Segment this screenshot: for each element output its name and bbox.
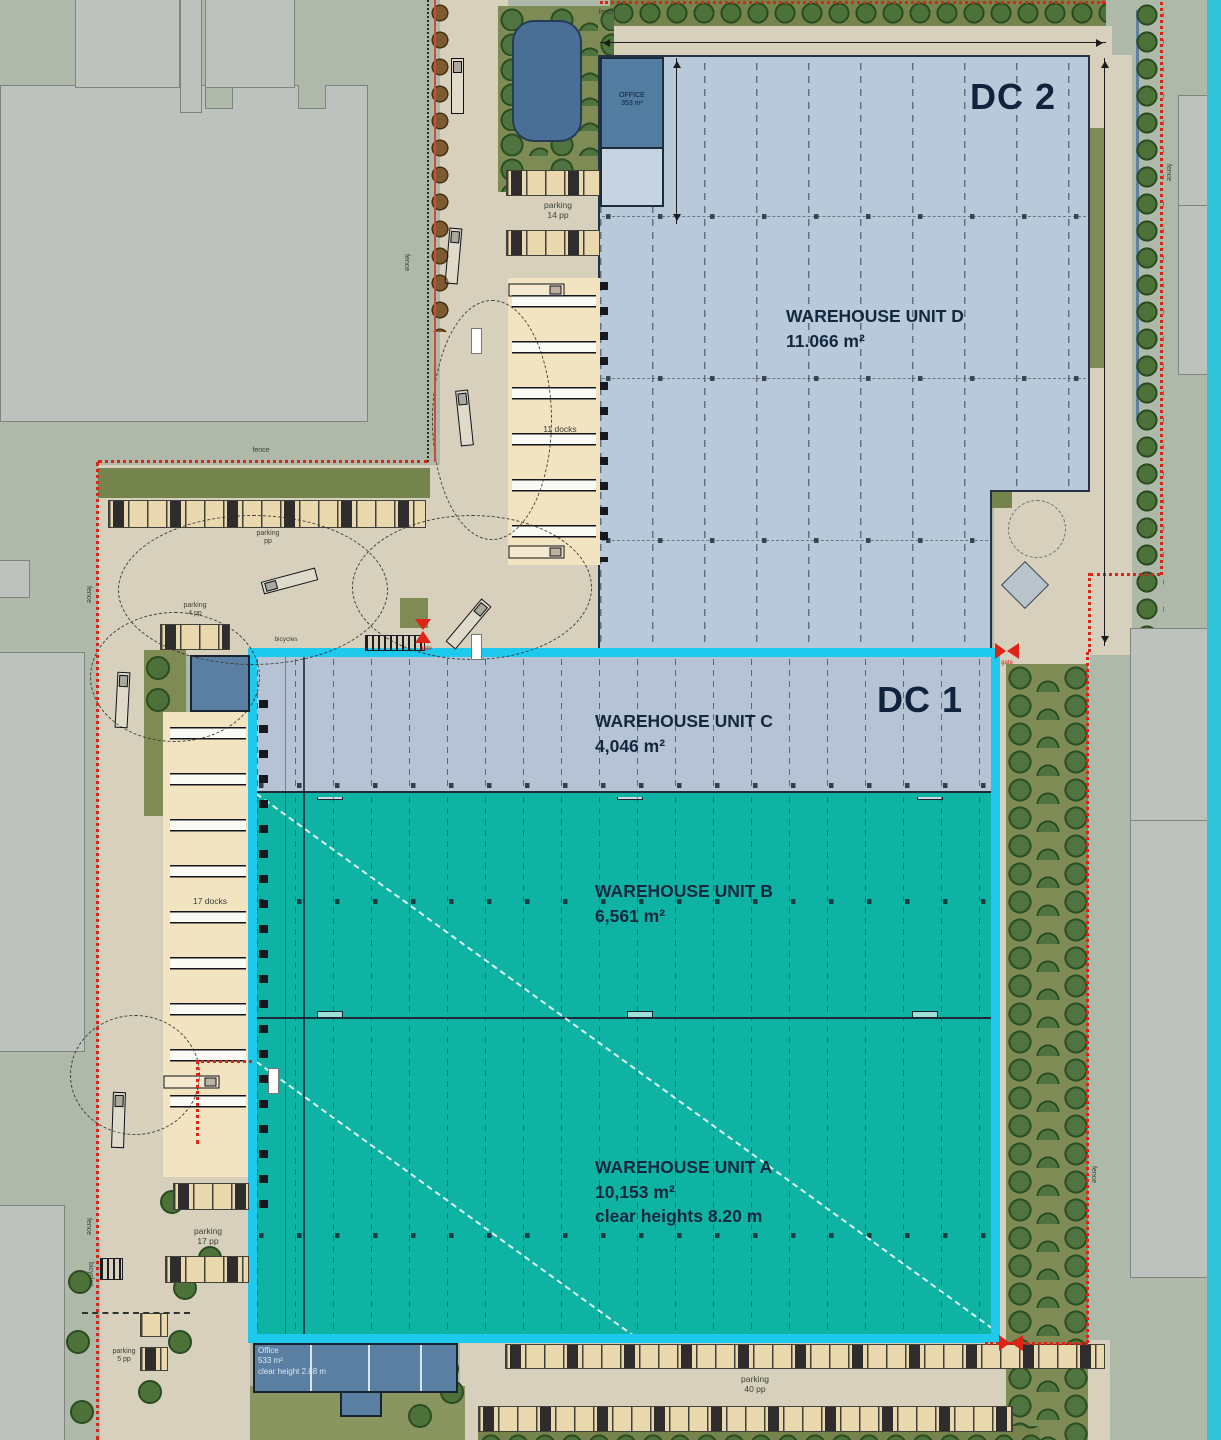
parking-capacity: 14 pp	[523, 210, 593, 220]
dc2-columns	[606, 538, 988, 543]
unit-d-area: 11.066 m²	[786, 329, 964, 354]
p17-label: parking 17 pp	[178, 1226, 238, 1246]
dc1-dock-doors	[259, 700, 268, 1225]
retention-pond	[512, 20, 582, 142]
unit-a-name: WAREHOUSE UNIT A	[595, 1155, 772, 1180]
fence-label: fence	[592, 9, 622, 17]
dimension-tag	[471, 328, 482, 354]
neighbor-building-ne	[1178, 95, 1207, 375]
dc1-south-office-annex	[340, 1393, 382, 1417]
dc2-office-area: 353 m²	[600, 100, 664, 108]
fence-east-orchard	[1086, 652, 1089, 1343]
road-edge-line	[434, 0, 436, 462]
dc2-office-anteroom	[600, 149, 664, 207]
truck-path	[432, 300, 552, 540]
parking-word: parking	[523, 200, 593, 210]
warehouse-unit-c-label: WAREHOUSE UNIT C 4,046 m²	[595, 709, 773, 758]
dc2-east-bed	[1088, 128, 1104, 368]
central-buffer-band	[98, 468, 430, 498]
neighbor-building-sw	[0, 1205, 65, 1440]
tree	[408, 1404, 432, 1428]
dc2-notch-wall	[990, 490, 1090, 492]
fence-north	[600, 1, 1105, 4]
dc2-title: DC 2	[970, 76, 1056, 118]
parking-capacity: 17 pp	[178, 1236, 238, 1246]
neighbor-building-n2	[180, 0, 202, 113]
fence-label: fence	[84, 1210, 92, 1244]
tree	[66, 1330, 90, 1354]
office-area: 533 m²	[258, 1356, 368, 1366]
site-plan: OFFICE 353 m² DC 2 WAREHOUSE UNIT D 11.0…	[0, 0, 1221, 1440]
neighbor-building-w	[0, 652, 85, 1052]
unit-d-name: WAREHOUSE UNIT D	[786, 304, 964, 329]
truck	[509, 284, 565, 297]
neighbor-ne-divider	[1178, 205, 1207, 206]
office-name: Office	[258, 1346, 368, 1356]
tree	[138, 1380, 162, 1404]
dc1-title: DC 1	[877, 679, 963, 721]
tree	[70, 1400, 94, 1424]
neighbor-nw-notch	[298, 85, 326, 109]
fence-road-boundary	[427, 0, 429, 462]
dc1-docks-label: 17 docks	[180, 896, 240, 906]
office-partition	[420, 1345, 422, 1391]
dimension-tag	[268, 1068, 279, 1094]
truck	[164, 1076, 220, 1089]
truck	[451, 58, 464, 114]
parking-word: parking	[700, 1374, 810, 1384]
gate-label: gate	[414, 646, 438, 653]
neighbor-building-e	[1130, 628, 1207, 1278]
bicycle-rack-south	[100, 1258, 123, 1280]
neighbor-building-w-small	[0, 560, 30, 598]
dimension-line	[1104, 58, 1105, 646]
dc2-parking-row-1	[506, 170, 600, 196]
p40-label: parking 40 pp	[700, 1374, 810, 1394]
truck	[111, 1092, 126, 1148]
dc2-building-main	[598, 55, 1090, 492]
fence-west	[96, 462, 99, 1440]
fence-inner-yard-v	[196, 1060, 199, 1144]
fence-east-dc2	[1160, 2, 1163, 575]
fence-label: fence	[246, 447, 276, 455]
unit-c-name: WAREHOUSE UNIT C	[595, 709, 773, 734]
fence-label: fence	[84, 578, 92, 612]
unit-a-clear-height: clear heights 8.20 m	[595, 1204, 772, 1229]
gate-icon	[414, 618, 432, 644]
fence-jog-v	[1088, 573, 1091, 652]
parking-capacity: 40 pp	[700, 1384, 810, 1394]
p5-row-1	[140, 1313, 168, 1337]
dimension-line	[600, 42, 1106, 43]
dc2-office-name: OFFICE	[600, 92, 664, 100]
dc1-office-label: Office 533 m² clear height 2.88 m	[258, 1346, 368, 1377]
neighbor-building-nw	[0, 85, 368, 422]
parking-capacity: 5 pp	[100, 1356, 148, 1364]
neighbor-building-n1	[75, 0, 180, 88]
fence-label: fence	[1164, 156, 1172, 190]
tree	[168, 1330, 192, 1354]
dc1-clearance-arcs	[257, 793, 991, 1334]
dc2-columns	[606, 376, 1086, 381]
warehouse-unit-d-label: WAREHOUSE UNIT D 11.066 m²	[786, 304, 964, 353]
dimension-tag	[471, 634, 482, 660]
truck	[509, 546, 565, 559]
dc1-building: DC 1 WAREHOUSE UNIT C 4,046 m² WAREHOUSE…	[248, 648, 1000, 1343]
dc2-parking-label: parking 14 pp	[523, 200, 593, 220]
unit-b-area: 6,561 m²	[595, 904, 773, 929]
fence-sw-boundary	[82, 1312, 190, 1314]
office-clear-height: clear height 2.88 m	[258, 1367, 368, 1377]
dc1-unit-c-columns	[259, 783, 989, 788]
warehouse-unit-b-label: WAREHOUSE UNIT B 6,561 m²	[595, 879, 773, 928]
dc2-office-label: OFFICE 353 m²	[600, 92, 664, 108]
p17-row-1	[173, 1183, 249, 1210]
neighbor-nw-notch	[205, 85, 233, 109]
gate-icon	[994, 642, 1020, 660]
p5-label: parking 5 pp	[100, 1348, 148, 1364]
parking-word: parking	[100, 1348, 148, 1356]
fence-label: fence	[1089, 1158, 1097, 1192]
fence-label: fence	[402, 246, 410, 280]
gate-label: gate	[994, 660, 1020, 667]
east-orchard	[1006, 664, 1088, 1440]
p40-row-2	[478, 1406, 1013, 1432]
dc2-parking-row-2	[506, 230, 600, 256]
unit-b-name: WAREHOUSE UNIT B	[595, 879, 773, 904]
fence-jog	[1090, 573, 1160, 576]
neighbor-e-divider	[1130, 820, 1207, 821]
gate-icon	[998, 1334, 1024, 1352]
turning-circle	[1008, 500, 1066, 558]
bicycles-label-south: bicycles	[86, 1252, 94, 1296]
unit-a-area: 10,153 m²	[595, 1180, 772, 1205]
office-partition	[368, 1345, 370, 1391]
p17-row-2	[165, 1256, 249, 1283]
parking-word: parking	[178, 1226, 238, 1236]
right-edge-canal	[1207, 0, 1221, 1440]
fence-inner-yard	[196, 1060, 252, 1063]
clearance-line	[257, 793, 991, 1334]
neighbor-building-n3	[205, 0, 295, 88]
unit-c-area: 4,046 m²	[595, 734, 773, 759]
warehouse-unit-a-label: WAREHOUSE UNIT A 10,153 m² clear heights…	[595, 1155, 772, 1229]
dimension-line	[676, 58, 677, 224]
fence-mid-west	[98, 460, 428, 463]
dc2-building-lower	[598, 492, 992, 650]
